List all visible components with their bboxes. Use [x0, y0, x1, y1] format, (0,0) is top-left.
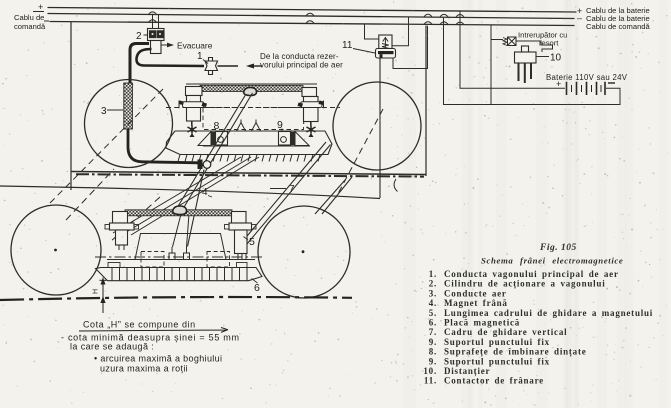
svg-text:comandă: comandă — [14, 22, 46, 31]
svg-text:10: 10 — [550, 53, 562, 64]
svg-text:10.: 10. — [423, 366, 437, 376]
svg-text:5.: 5. — [429, 308, 437, 318]
svg-text:1: 1 — [197, 51, 203, 62]
svg-text:9.: 9. — [429, 356, 437, 366]
svg-text:3.: 3. — [429, 288, 437, 298]
svg-text:H: H — [93, 289, 100, 294]
svg-text:Cota „H” se compune din: Cota „H” se compune din — [83, 320, 196, 330]
svg-text:6: 6 — [254, 282, 260, 294]
svg-text:4.: 4. — [429, 298, 437, 308]
svg-text:2.: 2. — [429, 279, 437, 289]
svg-text:3: 3 — [101, 106, 107, 117]
svg-text:uzura maxima a roții: uzura maxima a roții — [100, 364, 188, 374]
svg-text:+: + — [556, 79, 561, 89]
svg-text:9.: 9. — [429, 337, 437, 347]
svg-text:Contactor de frânare: Contactor de frânare — [444, 376, 544, 386]
svg-text:6.: 6. — [429, 318, 437, 328]
svg-text:vorului principal de aer: vorului principal de aer — [260, 61, 343, 70]
svg-text:la care se adaugă :: la care se adaugă : — [70, 342, 154, 352]
svg-text:11: 11 — [342, 40, 353, 51]
svg-text:8.: 8. — [429, 347, 437, 357]
svg-text:5: 5 — [249, 236, 255, 248]
svg-text:7: 7 — [289, 184, 295, 195]
svg-text:8: 8 — [214, 120, 220, 132]
svg-text:+: + — [38, 2, 43, 12]
svg-text:1.: 1. — [429, 269, 437, 279]
svg-text:7.: 7. — [429, 327, 437, 337]
svg-text:2: 2 — [136, 31, 142, 42]
svg-text:11.: 11. — [424, 376, 437, 386]
svg-text:• arcuirea maximă a boghiului: • arcuirea maximă a boghiului — [94, 354, 222, 364]
svg-text:Cablu de: Cablu de — [14, 13, 44, 22]
svg-text:Evacuare: Evacuare — [177, 41, 213, 51]
